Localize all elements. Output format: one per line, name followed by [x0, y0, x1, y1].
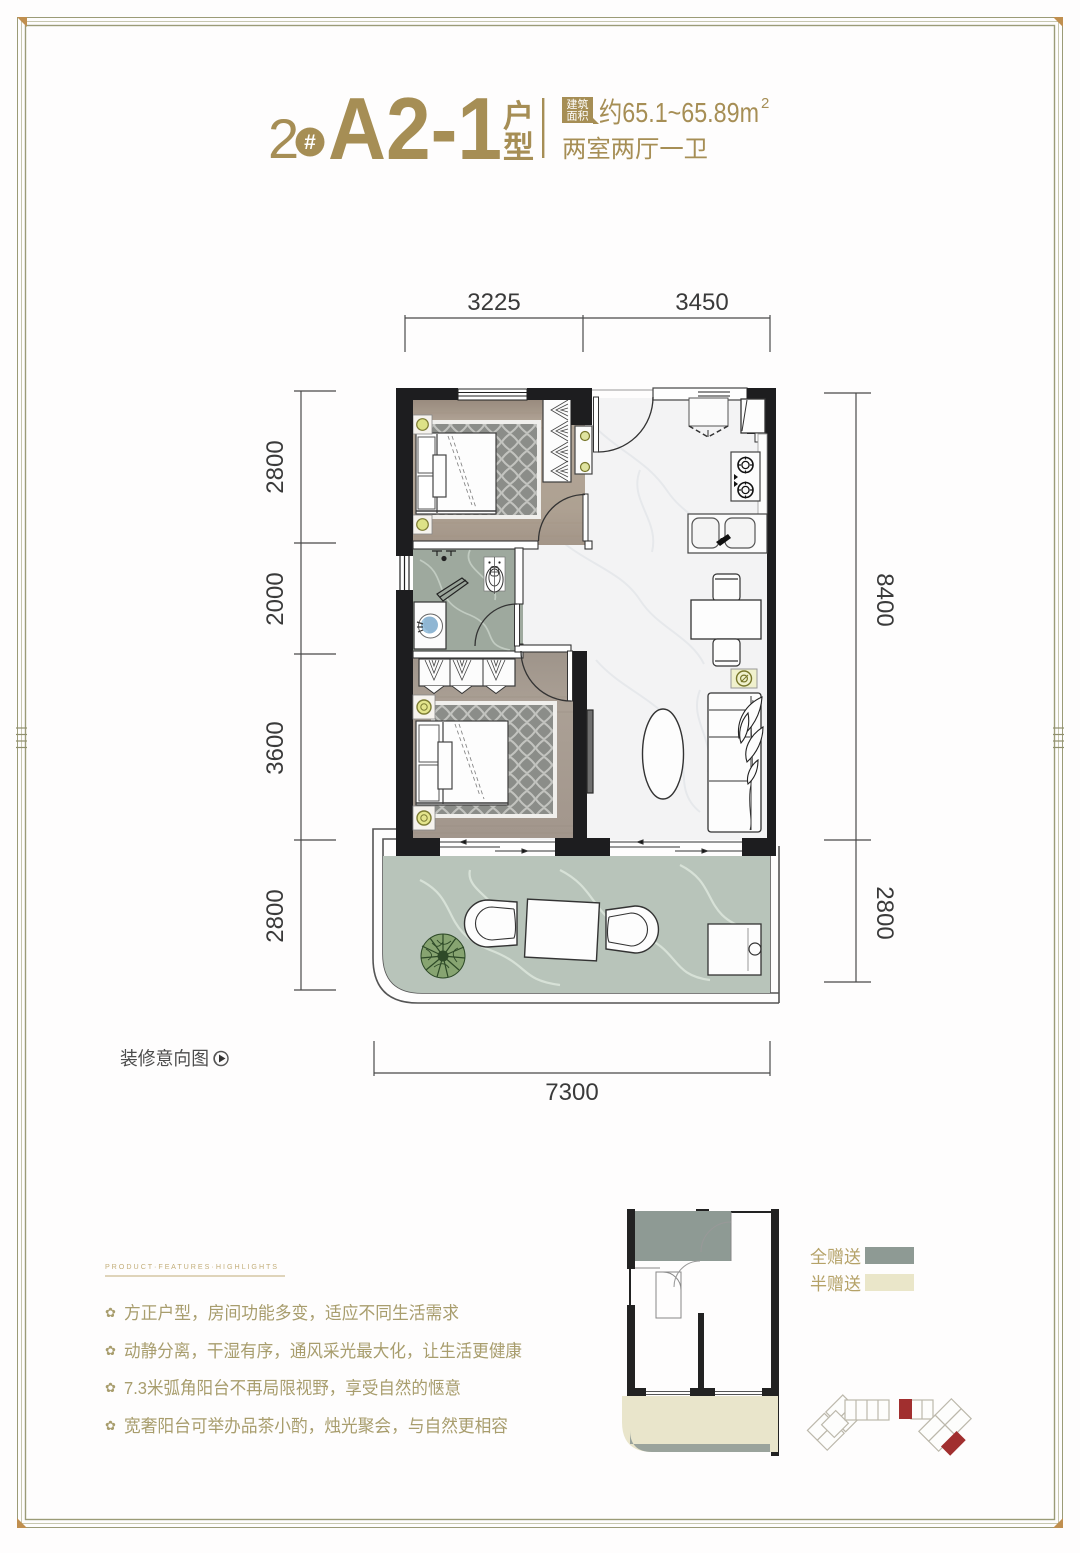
svg-text:7300: 7300 — [545, 1079, 598, 1106]
svg-text:2800: 2800 — [262, 889, 289, 942]
svg-text:宽奢阳台可举办品茶小酌，烛光聚会，与自然更相容: 宽奢阳台可举办品茶小酌，烛光聚会，与自然更相容 — [124, 1416, 508, 1436]
svg-text:约65.1~65.89m: 约65.1~65.89m — [599, 97, 759, 128]
svg-text:3450: 3450 — [675, 289, 728, 316]
svg-text:装修意向图: 装修意向图 — [120, 1048, 209, 1069]
svg-text:动静分离，干湿有序，通风采光最大化，让生活更健康: 动静分离，干湿有序，通风采光最大化，让生活更健康 — [124, 1341, 522, 1361]
svg-text:全赠送: 全赠送 — [810, 1247, 861, 1267]
svg-text:✿: ✿ — [105, 1305, 116, 1320]
svg-text:建筑: 建筑 — [567, 97, 589, 111]
svg-text:2: 2 — [761, 95, 769, 112]
svg-text:2800: 2800 — [262, 440, 289, 493]
svg-text:✿: ✿ — [105, 1343, 116, 1358]
svg-text:型: 型 — [503, 130, 534, 165]
svg-text:2800: 2800 — [871, 886, 898, 939]
svg-text:方正户型，房间功能多变，适应不同生活需求: 方正户型，房间功能多变，适应不同生活需求 — [124, 1303, 459, 1323]
svg-text:3225: 3225 — [467, 289, 520, 316]
svg-text:✿: ✿ — [105, 1418, 116, 1433]
svg-text:8400: 8400 — [871, 573, 898, 626]
svg-text:✿: ✿ — [105, 1380, 116, 1395]
svg-text:两室两厅一卫: 两室两厅一卫 — [562, 136, 708, 163]
svg-text:7.3米弧角阳台不再局限视野，享受自然的惬意: 7.3米弧角阳台不再局限视野，享受自然的惬意 — [124, 1378, 461, 1398]
svg-text:P R O D U C T · F E A T U R E: P R O D U C T · F E A T U R E S · H I G … — [105, 1262, 277, 1271]
svg-text:2: 2 — [268, 107, 299, 170]
svg-text:3600: 3600 — [262, 721, 289, 774]
svg-text:面积: 面积 — [567, 110, 589, 123]
svg-text:#: # — [304, 131, 316, 154]
svg-text:A2-1: A2-1 — [328, 79, 502, 178]
svg-text:2000: 2000 — [262, 572, 289, 625]
svg-text:半赠送: 半赠送 — [810, 1274, 861, 1294]
svg-text:户: 户 — [503, 99, 534, 134]
